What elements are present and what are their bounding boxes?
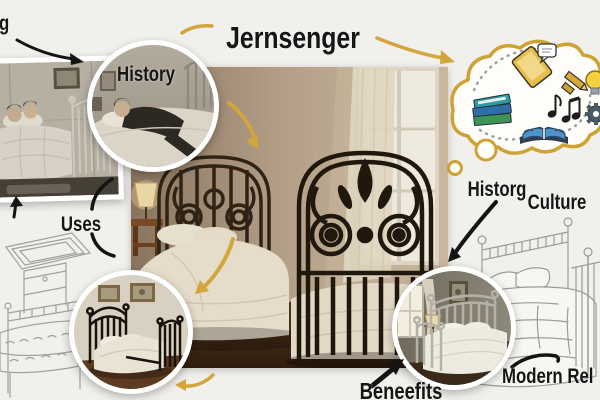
bottom-gold-swoosh: [175, 375, 213, 391]
white-bedding: [94, 334, 166, 373]
clipped-word-top-left: g: [0, 13, 9, 34]
gear-icon: [585, 103, 600, 125]
title-left-swoosh: [182, 26, 212, 33]
white-iron-bed-circle-photo: [392, 266, 516, 390]
label-benefits: Beneefits: [360, 380, 443, 400]
label-modern-relevance: Modern Rel: [502, 366, 593, 387]
framed-picture: [449, 281, 468, 304]
label-uses: Uses: [61, 214, 101, 235]
history-circle-photo: [87, 40, 219, 172]
quilt: [0, 124, 72, 182]
bubble-trail-circle-large: [476, 140, 496, 160]
label-history: History: [117, 64, 175, 85]
label-historg: Historg: [468, 179, 527, 200]
page-title: Jernsenger: [226, 22, 360, 53]
thought-bubble: [440, 35, 600, 180]
black-iron-bed-circle-photo: [69, 270, 193, 394]
infographic-canvas: Jernsenger g History Uses Historg Cultur…: [0, 0, 600, 400]
bubble-trail-circle-small: [449, 162, 462, 175]
framed-picture: [53, 67, 80, 89]
label-culture: Culture: [528, 192, 587, 213]
